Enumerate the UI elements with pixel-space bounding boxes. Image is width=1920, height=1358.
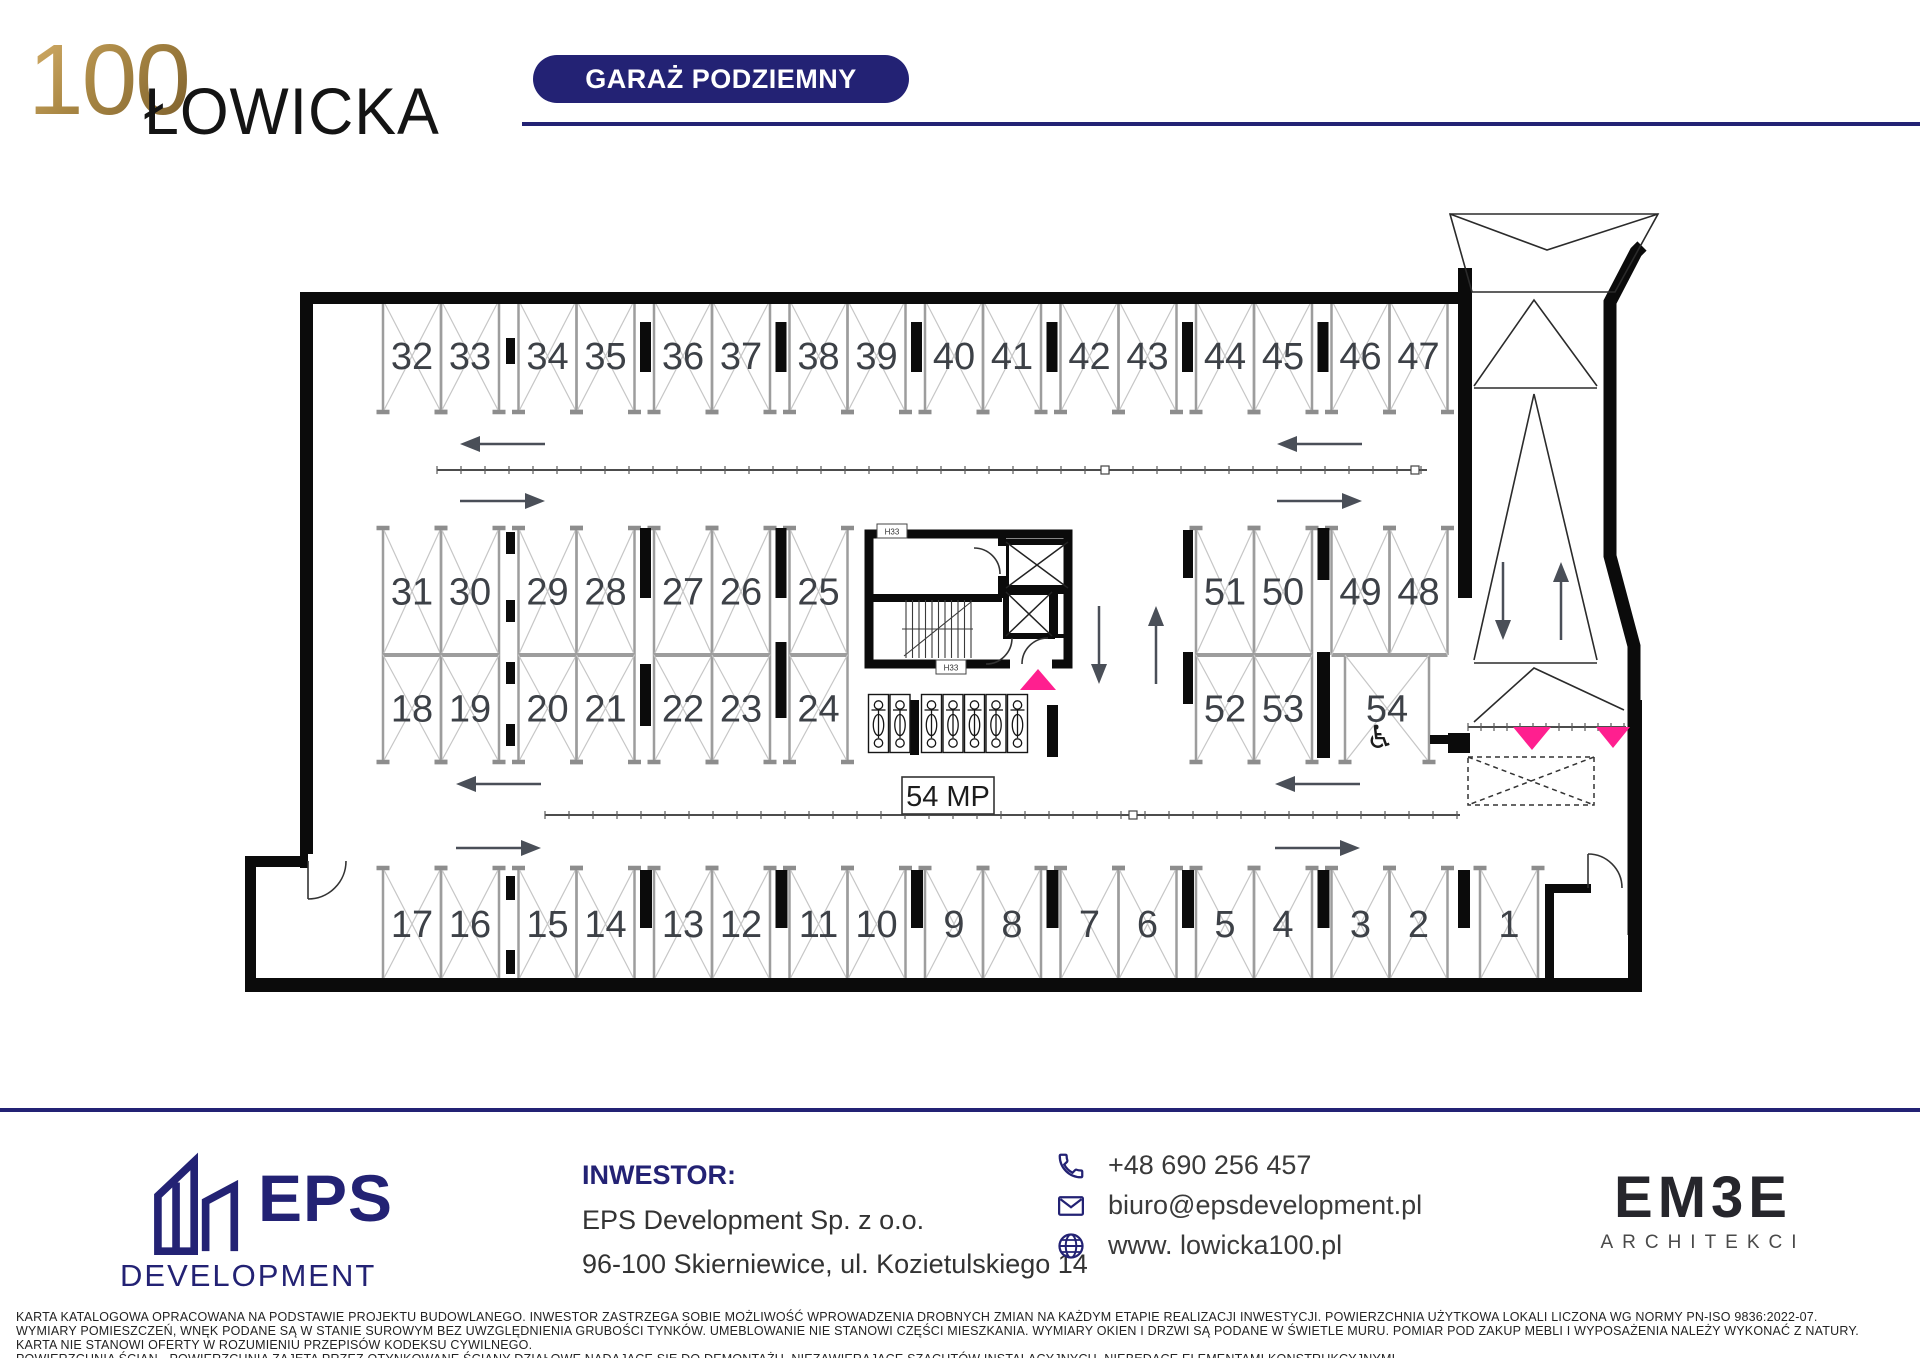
stall-number: 34: [526, 336, 568, 378]
parking-stall: 36: [648, 300, 719, 412]
direction-arrow: [460, 493, 545, 509]
stall-number: 2: [1408, 904, 1429, 946]
motorcycle-stall: [943, 695, 963, 753]
parking-stall: 46: [1325, 300, 1396, 412]
parking-stall: 24: [783, 655, 854, 762]
parking-stall: 15: [512, 868, 583, 980]
pillar: [506, 338, 515, 364]
stall-number: 33: [449, 336, 491, 378]
parking-stall: 51: [1190, 528, 1261, 655]
stall-number: 49: [1339, 572, 1381, 614]
embe-subtitle: ARCHITEKCI: [1588, 1232, 1818, 1254]
stall-number: 39: [855, 336, 897, 378]
pillar: [910, 700, 919, 755]
contact-website-row: www. lowicka100.pl: [1056, 1230, 1422, 1261]
parking-stall: 9: [919, 868, 990, 980]
stall-number: 23: [720, 689, 762, 731]
direction-arrow: [1495, 562, 1511, 640]
motorcycle-stalls: [869, 695, 1028, 753]
pillar: [506, 876, 515, 900]
pillar: [1318, 528, 1330, 580]
stall-number: 30: [449, 572, 491, 614]
direction-arrow: [1277, 493, 1362, 509]
motorcycle-stall: [869, 695, 889, 753]
stall-number: 7: [1079, 904, 1100, 946]
wheelchair-icon: ♿: [1366, 718, 1395, 756]
parking-stall: 33: [435, 300, 506, 412]
traffic-arrows: [456, 436, 1569, 856]
stall-number: 16: [449, 904, 491, 946]
stall-number: 53: [1262, 689, 1304, 731]
email-address[interactable]: biuro@epsdevelopment.pl: [1108, 1190, 1422, 1221]
pillar: [911, 322, 922, 372]
parking-stall: 28: [570, 528, 641, 655]
pillar: [1047, 870, 1059, 928]
parking-stall: 45: [1248, 300, 1319, 412]
pillar: [1318, 870, 1330, 928]
motorcycle-stall: [890, 695, 910, 753]
parking-stall: 40: [919, 300, 990, 412]
stall-number: 19: [449, 689, 491, 731]
direction-arrow: [460, 436, 545, 452]
parking-stall: 42: [1054, 300, 1125, 412]
pillar: [1047, 705, 1058, 757]
parking-stall: 11: [783, 868, 854, 980]
direction-arrow: [1553, 562, 1569, 640]
stall-number: 27: [662, 572, 704, 614]
car-ramp: [1450, 214, 1658, 805]
core-entry-marker: [1020, 669, 1056, 690]
capacity-box: 54 MP: [902, 777, 994, 814]
stall-number: 25: [797, 572, 839, 614]
stall-number: 24: [797, 689, 839, 731]
pillar: [1182, 870, 1194, 928]
core-label: H33: [885, 528, 900, 537]
parking-stall: 31: [377, 528, 448, 655]
eps-name: EPS: [258, 1160, 393, 1236]
stall-number: 51: [1204, 572, 1246, 614]
direction-arrow: [456, 840, 541, 856]
parking-stall: 39: [841, 300, 912, 412]
stall-number: 46: [1339, 336, 1381, 378]
stall-number: 18: [391, 689, 433, 731]
structural-pillars: [506, 322, 1470, 974]
pillar: [1458, 870, 1470, 928]
parking-stall: 3: [1325, 868, 1396, 980]
disclaimer-line: KARTA KATALOGOWA OPRACOWANA NA PODSTAWIE…: [16, 1312, 1912, 1324]
staircase: [902, 600, 973, 658]
parking-stall: 35: [570, 300, 641, 412]
parking-stall: 25: [783, 528, 854, 655]
stall-number: 48: [1397, 572, 1439, 614]
parking-stall: 2: [1383, 868, 1454, 980]
pillar: [506, 532, 515, 554]
parking-stall: 5: [1190, 868, 1261, 980]
direction-arrow: [1275, 840, 1360, 856]
parking-stall: 12: [706, 868, 777, 980]
reserved-area-dashed: [1468, 757, 1594, 805]
parking-stall: 4: [1248, 868, 1319, 980]
stall-number: 9: [943, 904, 964, 946]
direction-arrow: [456, 776, 541, 792]
parking-stalls: 3233343536373839404142434445464731302928…: [377, 300, 1545, 980]
direction-arrow: [1091, 606, 1107, 684]
stall-number: 41: [991, 336, 1033, 378]
motorcycle-stall: [922, 695, 942, 753]
parking-stall: 14: [570, 868, 641, 980]
website-url[interactable]: www. lowicka100.pl: [1108, 1230, 1342, 1261]
stair-elevator-core: H33 H33: [869, 524, 1068, 674]
parking-stall: 47: [1383, 300, 1454, 412]
pillar: [776, 642, 787, 718]
stall-number: 15: [526, 904, 568, 946]
stall-number: 47: [1397, 336, 1439, 378]
parking-stall: 20: [512, 655, 583, 762]
stall-number: 31: [391, 572, 433, 614]
parking-stall: 10: [841, 868, 912, 980]
parking-stall: 49: [1325, 528, 1396, 655]
stall-number: 35: [584, 336, 626, 378]
motorcycle-stall: [1008, 695, 1028, 753]
parking-stall: 22: [648, 655, 719, 762]
capacity-label: 54 MP: [906, 781, 990, 813]
disclaimer-line: KARTA NIE STANOWI OFERTY W ROZUMIENIU PR…: [16, 1340, 1912, 1352]
investor-name: EPS Development Sp. z o.o.: [582, 1205, 1088, 1236]
pillar: [1318, 322, 1329, 372]
phone-number[interactable]: +48 690 256 457: [1108, 1150, 1311, 1181]
phone-icon: [1056, 1151, 1086, 1181]
stall-number: 36: [662, 336, 704, 378]
pillar: [640, 528, 651, 598]
motorcycle-stall: [965, 695, 985, 753]
embe-architekci-logo: EM3E ARCHITEKCI: [1588, 1168, 1818, 1254]
pillar: [506, 950, 515, 974]
contact-block: +48 690 256 457 biuro@epsdevelopment.pl …: [1056, 1150, 1422, 1270]
stall-number: 11: [799, 904, 838, 946]
stall-number: 12: [720, 904, 762, 946]
parking-stall: 50: [1248, 528, 1319, 655]
page: 100 ŁOWICKA GARAŻ PODZIEMNY 323334353637…: [0, 0, 1920, 1358]
stall-number: 32: [391, 336, 433, 378]
pillar: [776, 322, 787, 372]
parking-stall: 16: [435, 868, 506, 980]
disclaimer-line: POWIERZCHNIA ŚCIAN - POWIERZCHNIA ZAJĘTA…: [16, 1354, 1912, 1358]
pillar: [1183, 530, 1193, 578]
stall-number: 10: [855, 904, 897, 946]
parking-stall: 53: [1248, 655, 1319, 762]
parking-stall: 26: [706, 528, 777, 655]
direction-arrow: [1275, 776, 1360, 792]
pillar: [506, 600, 515, 622]
parking-stall: 29: [512, 528, 583, 655]
parking-stall: 44: [1190, 300, 1261, 412]
direction-arrow: [1148, 606, 1164, 684]
embe-name: EM3E: [1588, 1168, 1818, 1228]
eps-development-logo: EPS DEVELOPMENT: [118, 1142, 458, 1307]
parking-stall: 37: [706, 300, 777, 412]
parking-stall: 43: [1112, 300, 1183, 412]
stall-number: 3: [1350, 904, 1371, 946]
parking-stall: 7: [1054, 868, 1125, 980]
stall-number: 42: [1068, 336, 1110, 378]
pillar: [506, 662, 515, 684]
pillar: [640, 664, 651, 726]
core-label: H33: [944, 664, 959, 673]
stall-number: 26: [720, 572, 762, 614]
stall-number: 44: [1204, 336, 1246, 378]
pillar: [1182, 322, 1193, 372]
stall-number: 5: [1214, 904, 1235, 946]
stall-number: 4: [1272, 904, 1293, 946]
stall-number: 28: [584, 572, 626, 614]
pillar: [1047, 322, 1058, 372]
stall-number: 21: [584, 689, 626, 731]
motorcycle-stall: [986, 695, 1006, 753]
pillar: [776, 528, 787, 598]
parking-stall: 34: [512, 300, 583, 412]
stall-number: 1: [1498, 904, 1519, 946]
legal-disclaimer: KARTA KATALOGOWA OPRACOWANA NA PODSTAWIE…: [16, 1312, 1912, 1358]
stall-number: 37: [720, 336, 762, 378]
investor-heading: INWESTOR:: [582, 1160, 1088, 1191]
stall-number: 8: [1001, 904, 1022, 946]
parking-stall: 48: [1383, 528, 1454, 655]
pillar: [911, 870, 923, 928]
stall-number: 22: [662, 689, 704, 731]
stall-number: 43: [1126, 336, 1168, 378]
parking-stall: 52: [1190, 655, 1261, 762]
contact-email-row: biuro@epsdevelopment.pl: [1056, 1190, 1422, 1221]
stall-number: 13: [662, 904, 704, 946]
parking-stall: 19: [435, 655, 506, 762]
footer-divider: [0, 1108, 1920, 1112]
stall-number: 52: [1204, 689, 1246, 731]
contact-phone-row: +48 690 256 457: [1056, 1150, 1422, 1181]
disclaimer-line: WYMIARY POMIESZCZEŃ, WNĘK PODANE SĄ W ST…: [16, 1326, 1912, 1338]
direction-arrow: [1277, 436, 1362, 452]
envelope-icon: [1056, 1191, 1086, 1221]
doors: [308, 854, 1623, 899]
stall-number: 40: [933, 336, 975, 378]
stall-number: 38: [797, 336, 839, 378]
pillar: [776, 870, 788, 928]
ramp-right-wall: [1610, 246, 1642, 935]
parking-stall: 1: [1474, 868, 1545, 980]
investor-block: INWESTOR: EPS Development Sp. z o.o. 96-…: [582, 1160, 1088, 1293]
parking-stall: 41: [977, 300, 1048, 412]
pillar: [640, 870, 652, 928]
parking-stall: 30: [435, 528, 506, 655]
stall-number: 20: [526, 689, 568, 731]
parking-stall: 23: [706, 655, 777, 762]
stall-number: 45: [1262, 336, 1304, 378]
stall-number: 29: [526, 572, 568, 614]
investor-address: 96-100 Skierniewice, ul. Kozietulskiego …: [582, 1249, 1088, 1280]
parking-stall: 32: [377, 300, 448, 412]
pillar: [1183, 652, 1193, 704]
parking-stall: 17: [377, 868, 448, 980]
stall-number: 17: [391, 904, 433, 946]
stall-number: 50: [1262, 572, 1304, 614]
parking-stall: 27: [648, 528, 719, 655]
parking-stall: 13: [648, 868, 719, 980]
parking-stall: 18: [377, 655, 448, 762]
stall-number: 14: [584, 904, 626, 946]
parking-stall: 38: [783, 300, 854, 412]
pillar: [506, 724, 515, 746]
eps-subtitle: DEVELOPMENT: [120, 1258, 376, 1294]
parking-stall: 6: [1112, 868, 1183, 980]
globe-icon: [1056, 1231, 1086, 1261]
stall-number: 6: [1137, 904, 1158, 946]
parking-stall: 8: [977, 868, 1048, 980]
pillar: [640, 322, 651, 372]
eps-building-icon: [148, 1150, 248, 1255]
parking-stall: 21: [570, 655, 641, 762]
pillar: [1317, 652, 1330, 758]
